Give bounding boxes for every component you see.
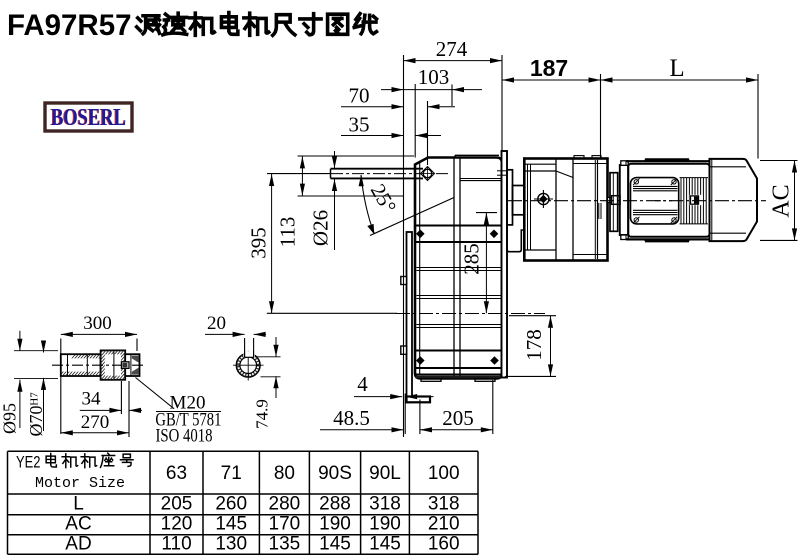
svg-text:113: 113 [276,217,300,248]
svg-text:288: 288 [319,494,351,515]
svg-text:AC: AC [65,514,91,535]
svg-text:BOSERL: BOSERL [51,105,126,131]
svg-text:318: 318 [369,494,401,515]
svg-text:35: 35 [349,113,370,137]
svg-text:170: 170 [269,514,301,535]
svg-text:YE2: YE2 [16,453,41,472]
svg-text:120: 120 [161,514,193,535]
svg-text:90S: 90S [318,463,352,484]
svg-text:190: 190 [369,514,401,535]
svg-text:20: 20 [207,313,226,334]
svg-text:Motor Size: Motor Size [35,474,125,492]
svg-text:395: 395 [247,227,271,259]
svg-text:135: 135 [269,533,301,554]
svg-text:48.5: 48.5 [333,406,370,430]
svg-text:205: 205 [442,406,474,430]
svg-text:100: 100 [428,463,460,484]
svg-text:25°: 25° [366,180,401,217]
svg-text:274: 274 [436,37,468,61]
svg-text:H7: H7 [29,392,41,406]
svg-text:L: L [73,494,84,515]
svg-text:ISO 4018: ISO 4018 [156,426,213,447]
svg-text:Ø95: Ø95 [0,403,20,434]
svg-text:160: 160 [428,533,460,554]
svg-text:80: 80 [274,463,295,484]
svg-text:74.9: 74.9 [253,399,272,429]
svg-text:Ø26: Ø26 [309,210,333,246]
svg-text:AC: AC [769,184,795,217]
svg-text:130: 130 [215,533,247,554]
svg-text:187: 187 [530,55,568,81]
svg-text:145: 145 [319,533,351,554]
svg-text:190: 190 [319,514,351,535]
svg-text:280: 280 [269,494,301,515]
svg-text:71: 71 [221,463,242,484]
svg-text:145: 145 [369,533,401,554]
svg-text:L: L [669,55,684,82]
svg-text:210: 210 [428,514,460,535]
svg-text:145: 145 [215,514,247,535]
svg-text:34: 34 [82,389,102,410]
svg-text:103: 103 [418,65,450,89]
svg-text:63: 63 [166,463,187,484]
svg-text:270: 270 [81,412,110,433]
svg-text:205: 205 [161,494,193,515]
svg-text:178: 178 [522,329,546,361]
svg-text:4: 4 [357,372,368,396]
svg-text:Ø70: Ø70 [26,406,46,437]
svg-text:318: 318 [428,494,460,515]
svg-text:260: 260 [215,494,247,515]
svg-text:AD: AD [65,533,91,554]
svg-text:90L: 90L [369,463,401,484]
svg-text:FA97R57: FA97R57 [7,9,132,42]
svg-text:285: 285 [460,243,484,275]
svg-text:300: 300 [83,313,112,334]
svg-text:110: 110 [161,533,191,554]
svg-text:70: 70 [349,84,370,108]
